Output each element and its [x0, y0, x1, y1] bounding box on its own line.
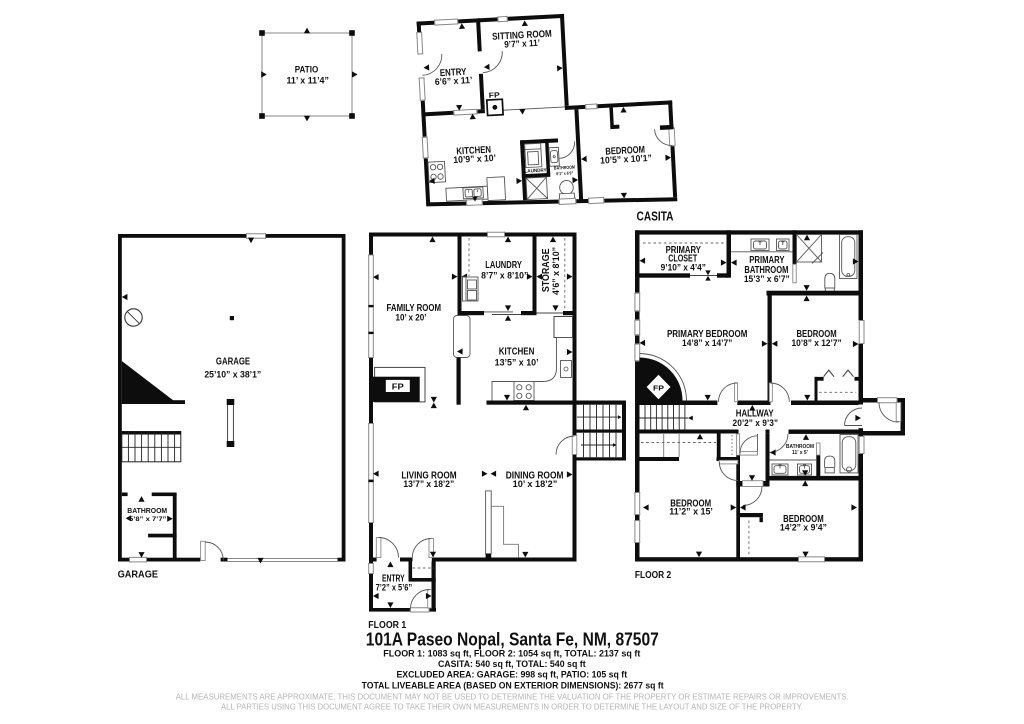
svg-text:11’ x 11’4”: 11’ x 11’4” — [286, 76, 329, 87]
svg-text:LAUNDRY: LAUNDRY — [485, 260, 522, 271]
svg-text:7’2” x 5’6”: 7’2” x 5’6” — [376, 582, 413, 592]
svg-text:14’8” x 14’7”: 14’8” x 14’7” — [682, 338, 732, 348]
svg-text:14’2” x 9’4”: 14’2” x 9’4” — [780, 523, 827, 533]
svg-text:TOTAL LIVEABLE AREA (BASED ON: TOTAL LIVEABLE AREA (BASED ON EXTERIOR D… — [362, 681, 664, 691]
svg-text:6’6” x 11’: 6’6” x 11’ — [435, 75, 473, 87]
svg-text:EXCLUDED AREA: GARAGE: 998 sq: EXCLUDED AREA: GARAGE: 998 sq ft, PATIO:… — [396, 670, 627, 680]
svg-text:15’3” x 6’7”: 15’3” x 6’7” — [744, 274, 790, 284]
svg-text:CASITA: CASITA — [637, 210, 674, 224]
svg-text:101A Paseo Nopal, Santa Fe, NM: 101A Paseo Nopal, Santa Fe, NM, 87507 — [366, 629, 659, 650]
svg-text:PATIO: PATIO — [295, 65, 319, 76]
svg-text:13’5” x 10’: 13’5” x 10’ — [495, 357, 539, 367]
svg-text:11’2” x 15’: 11’2” x 15’ — [669, 507, 713, 517]
svg-text:GARAGE: GARAGE — [216, 357, 250, 368]
svg-text:BATHROOM: BATHROOM — [786, 444, 814, 450]
svg-text:BATHROOM: BATHROOM — [127, 508, 167, 515]
svg-text:25’10” x 38’1”: 25’10” x 38’1” — [204, 370, 261, 381]
svg-text:10’ x 18’2”: 10’ x 18’2” — [513, 479, 558, 489]
svg-text:GARAGE: GARAGE — [118, 569, 158, 581]
svg-text:LAUNDRY: LAUNDRY — [524, 167, 547, 174]
svg-text:ALL MEASUREMENTS ARE APPROXIMA: ALL MEASUREMENTS ARE APPROXIMATE. THIS D… — [176, 692, 849, 701]
svg-text:4’6” x 8’10”: 4’6” x 8’10” — [551, 247, 561, 295]
svg-text:10’8” x 12’7”: 10’8” x 12’7” — [791, 338, 841, 348]
svg-text:FP: FP — [489, 90, 500, 100]
svg-text:9’7” x 11’: 9’7” x 11’ — [504, 38, 540, 50]
svg-text:8’7” x 8’10”: 8’7” x 8’10” — [481, 271, 528, 281]
svg-text:10’ x 20’: 10’ x 20’ — [396, 312, 427, 322]
svg-text:9’10” x 4’4”: 9’10” x 4’4” — [661, 263, 706, 273]
svg-text:5’8” x 7’7”: 5’8” x 7’7” — [129, 516, 166, 523]
svg-text:FLOOR 2: FLOOR 2 — [635, 570, 672, 581]
svg-text:ALL PARTIES USING THIS DOCUMEN: ALL PARTIES USING THIS DOCUMENT AGREE TO… — [221, 702, 803, 711]
svg-text:20’2” x 9’3”: 20’2” x 9’3” — [733, 418, 779, 428]
svg-text:CASITA: 540 sq ft, TOTAL: 540: CASITA: 540 sq ft, TOTAL: 540 sq ft — [438, 659, 586, 669]
svg-text:FP: FP — [392, 381, 404, 391]
svg-text:FLOOR 1: 1083 sq ft, FLOOR 2:: FLOOR 1: 1083 sq ft, FLOOR 2: 1054 sq ft… — [383, 649, 640, 659]
svg-text:KITCHEN: KITCHEN — [499, 347, 535, 358]
svg-text:6’1” x 6’9”: 6’1” x 6’9” — [556, 170, 573, 176]
svg-text:11’ x 5’: 11’ x 5’ — [792, 450, 809, 456]
svg-text:13’7” x 18’2”: 13’7” x 18’2” — [403, 479, 454, 489]
svg-text:FP: FP — [653, 384, 664, 393]
